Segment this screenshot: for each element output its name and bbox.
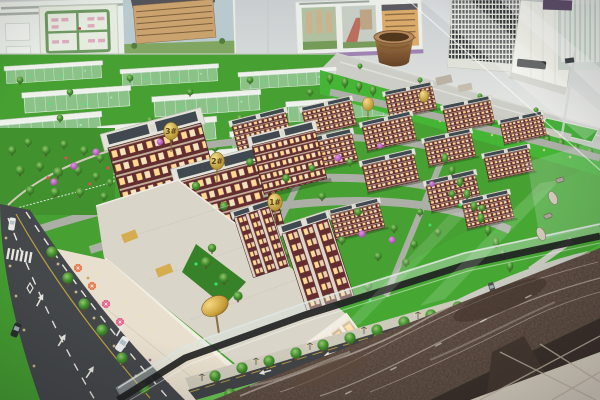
photo-tone — [0, 0, 600, 400]
model-photo-canvas: 3# 2# 1# — [0, 0, 600, 400]
showroom-photo: 3# 2# 1# — [0, 0, 600, 400]
